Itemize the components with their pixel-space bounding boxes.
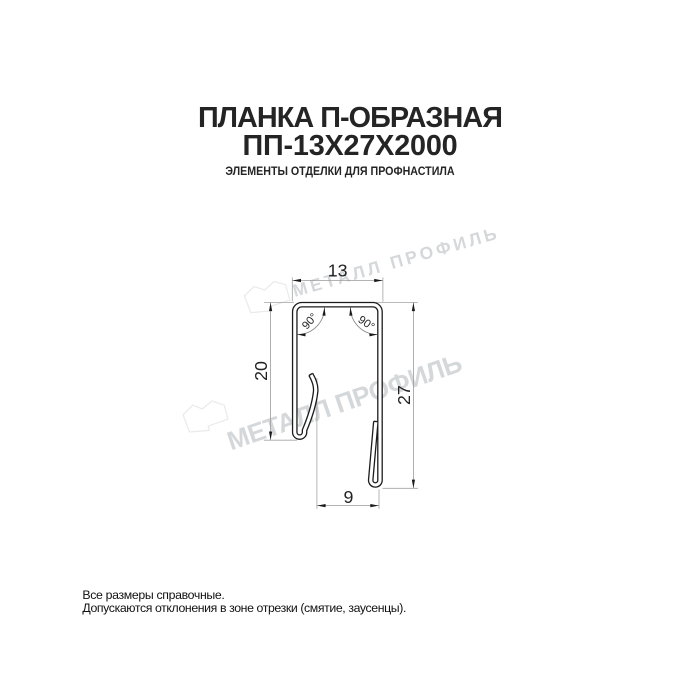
svg-text:20: 20 [251, 361, 271, 381]
svg-text:90°: 90° [356, 314, 377, 334]
svg-text:13: 13 [328, 260, 348, 280]
svg-text:МЕТАЛЛ ПРОФИЛЬ: МЕТАЛЛ ПРОФИЛЬ [290, 223, 502, 301]
svg-text:27: 27 [394, 385, 414, 405]
svg-text:90°: 90° [300, 311, 320, 332]
svg-text:9: 9 [343, 487, 353, 507]
